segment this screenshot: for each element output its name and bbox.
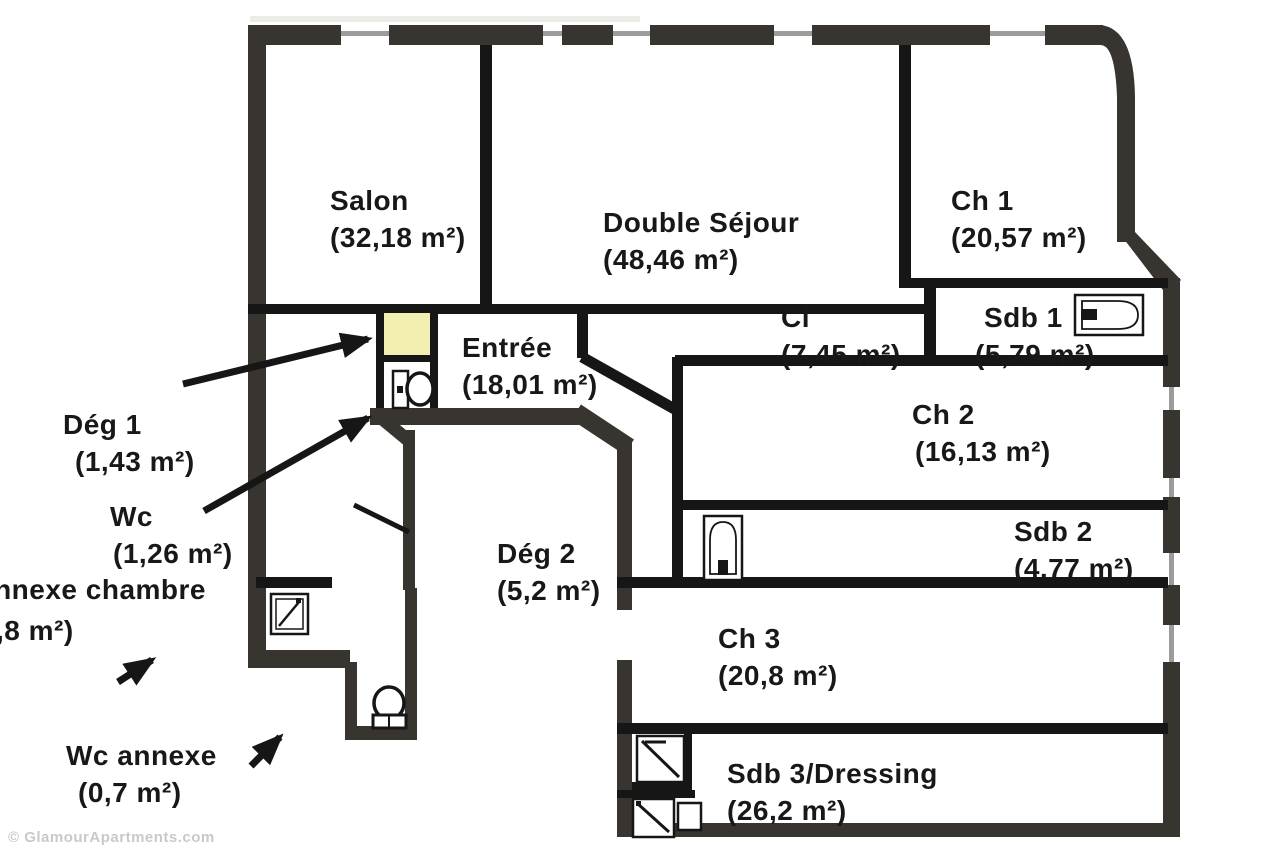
room-label-double-sejour: Double Séjour (48,46 m²) xyxy=(603,204,799,278)
watermark: © GlamourApartments.com xyxy=(8,829,215,846)
room-name: Salon xyxy=(330,182,466,219)
callout-label-wc-annexe: Wc annexe (0,7 m²) xyxy=(66,737,217,811)
callout-label-wc: Wc (1,26 m²) xyxy=(110,498,233,572)
room-label-sdb2: Sdb 2 (4,77 m²) xyxy=(1014,513,1134,587)
room-name: Ch 1 xyxy=(951,182,1087,219)
room-name: Ch 2 xyxy=(912,396,1051,433)
room-area: (20,8 m²) xyxy=(718,657,838,694)
room-label-sdb3: Sdb 3/Dressing (26,2 m²) xyxy=(727,755,938,829)
arrow-deg1 xyxy=(183,339,368,384)
room-area: (5,79 m²) xyxy=(975,336,1095,373)
room-name: Cl xyxy=(781,299,901,336)
room-name: Dég 1 xyxy=(63,406,195,443)
room-name: Sdb 3/Dressing xyxy=(727,755,938,792)
arrow-wc-annexe xyxy=(251,737,280,766)
room-name: Wc xyxy=(110,498,233,535)
shower-icon xyxy=(637,736,684,782)
room-name: Dég 2 xyxy=(497,535,601,572)
room-area: (1,26 m²) xyxy=(113,535,233,572)
callout-label-annexe-chambre-name: annexe chambre xyxy=(0,571,206,608)
room-area: (48,46 m²) xyxy=(603,241,799,278)
arrow-annexe xyxy=(118,660,152,682)
room-area: (18,01 m²) xyxy=(462,366,598,403)
scan-artifact xyxy=(250,16,640,22)
room-area: (32,18 m²) xyxy=(330,219,466,256)
room-label-sdb1: Sdb 1 (5,79 m²) xyxy=(984,299,1095,373)
room-area: (20,57 m²) xyxy=(951,219,1087,256)
room-label-cl: Cl (7,45 m²) xyxy=(781,299,901,373)
deg1-highlight xyxy=(384,313,430,355)
room-label-ch3: Ch 3 (20,8 m²) xyxy=(718,620,838,694)
room-name: Wc annexe xyxy=(66,737,217,774)
room-name: Entrée xyxy=(462,329,598,366)
room-label-ch2: Ch 2 (16,13 m²) xyxy=(912,396,1051,470)
room-area: (7,45 m²) xyxy=(781,336,901,373)
callout-label-deg1: Dég 1 (1,43 m²) xyxy=(63,406,195,480)
room-area: (5,2 m²) xyxy=(497,572,601,609)
room-area: ,8 m²) xyxy=(0,612,74,649)
toilet-icon xyxy=(393,371,433,408)
callout-label-annexe-chambre-area: ,8 m²) xyxy=(0,612,74,649)
room-name: Double Séjour xyxy=(603,204,799,241)
room-area: (0,7 m²) xyxy=(78,774,217,811)
room-label-ch1: Ch 1 (20,57 m²) xyxy=(951,182,1087,256)
shower-icon xyxy=(271,594,308,634)
room-name: Ch 3 xyxy=(718,620,838,657)
room-area: (26,2 m²) xyxy=(727,792,938,829)
room-area: (16,13 m²) xyxy=(915,433,1051,470)
room-name: Sdb 2 xyxy=(1014,513,1134,550)
room-label-salon: Salon (32,18 m²) xyxy=(330,182,466,256)
room-area: (4,77 m²) xyxy=(1014,550,1134,587)
bathtub-icon xyxy=(704,516,742,580)
room-label-entree: Entrée (18,01 m²) xyxy=(462,329,598,403)
room-label-deg2: Dég 2 (5,2 m²) xyxy=(497,535,601,609)
door-swing-line xyxy=(354,505,409,532)
room-name: Sdb 1 xyxy=(984,299,1095,336)
floor-plan: Salon (32,18 m²) Double Séjour (48,46 m²… xyxy=(0,0,1280,853)
room-name: annexe chambre xyxy=(0,571,206,608)
toilet-icon xyxy=(373,687,406,728)
room-area: (1,43 m²) xyxy=(75,443,195,480)
